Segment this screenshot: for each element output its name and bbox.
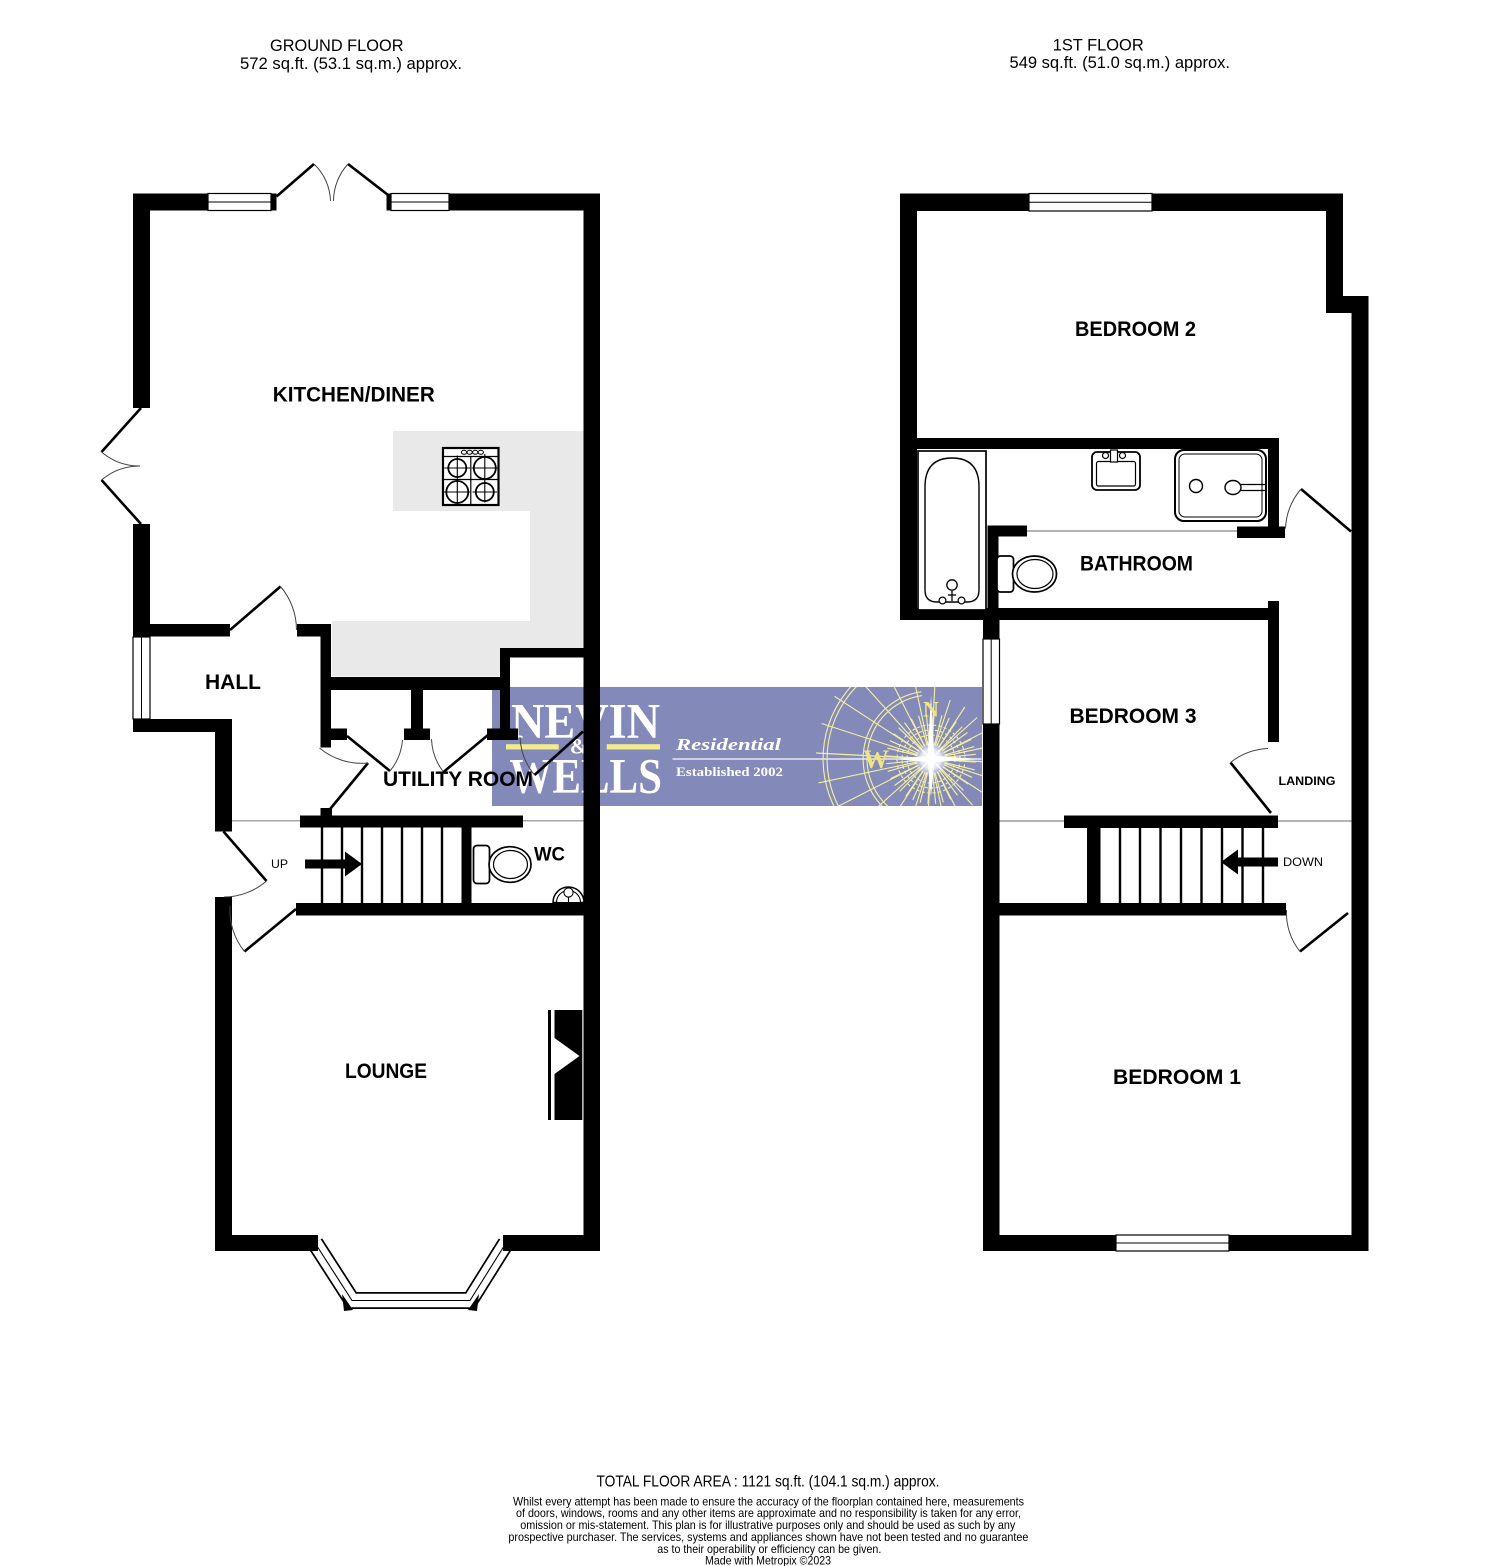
svg-text:HALL: HALL — [205, 671, 261, 694]
svg-text:W: W — [863, 745, 889, 774]
svg-text:UTILITY ROOM: UTILITY ROOM — [383, 768, 533, 791]
svg-text:Residential: Residential — [675, 735, 782, 754]
svg-text:549 sq.ft. (51.0 sq.m.) approx: 549 sq.ft. (51.0 sq.m.) approx. — [1010, 54, 1231, 72]
svg-text:UP: UP — [271, 857, 288, 871]
svg-text:BEDROOM 3: BEDROOM 3 — [1070, 705, 1197, 728]
svg-text:572 sq.ft. (53.1 sq.m.) approx: 572 sq.ft. (53.1 sq.m.) approx. — [240, 55, 462, 73]
svg-text:TOTAL FLOOR AREA : 1121 sq.ft.: TOTAL FLOOR AREA : 1121 sq.ft. (104.1 sq… — [597, 1474, 940, 1491]
svg-text:BEDROOM 2: BEDROOM 2 — [1075, 318, 1196, 341]
svg-text:LOUNGE: LOUNGE — [345, 1060, 427, 1083]
svg-text:GROUND FLOOR: GROUND FLOOR — [270, 36, 404, 55]
svg-text:BATHROOM: BATHROOM — [1080, 553, 1193, 576]
svg-text:Established 2002: Established 2002 — [676, 764, 783, 779]
svg-text:BEDROOM 1: BEDROOM 1 — [1113, 1066, 1241, 1089]
svg-text:Made with Metropix ©2023: Made with Metropix ©2023 — [705, 1554, 831, 1566]
svg-text:KITCHEN/DINER: KITCHEN/DINER — [273, 384, 435, 407]
svg-text:1ST FLOOR: 1ST FLOOR — [1053, 36, 1144, 55]
svg-text:LANDING: LANDING — [1279, 774, 1336, 788]
svg-text:DOWN: DOWN — [1283, 855, 1323, 869]
svg-text:N: N — [923, 697, 939, 722]
svg-text:WC: WC — [534, 845, 565, 866]
